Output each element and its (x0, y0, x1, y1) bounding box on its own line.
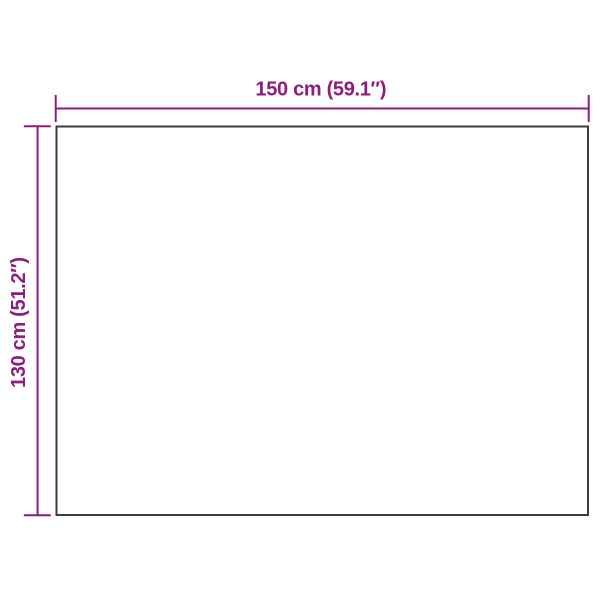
svg-text:130 cm (51.2″): 130 cm (51.2″) (8, 257, 30, 388)
svg-text:150 cm (59.1″): 150 cm (59.1″) (255, 79, 386, 101)
